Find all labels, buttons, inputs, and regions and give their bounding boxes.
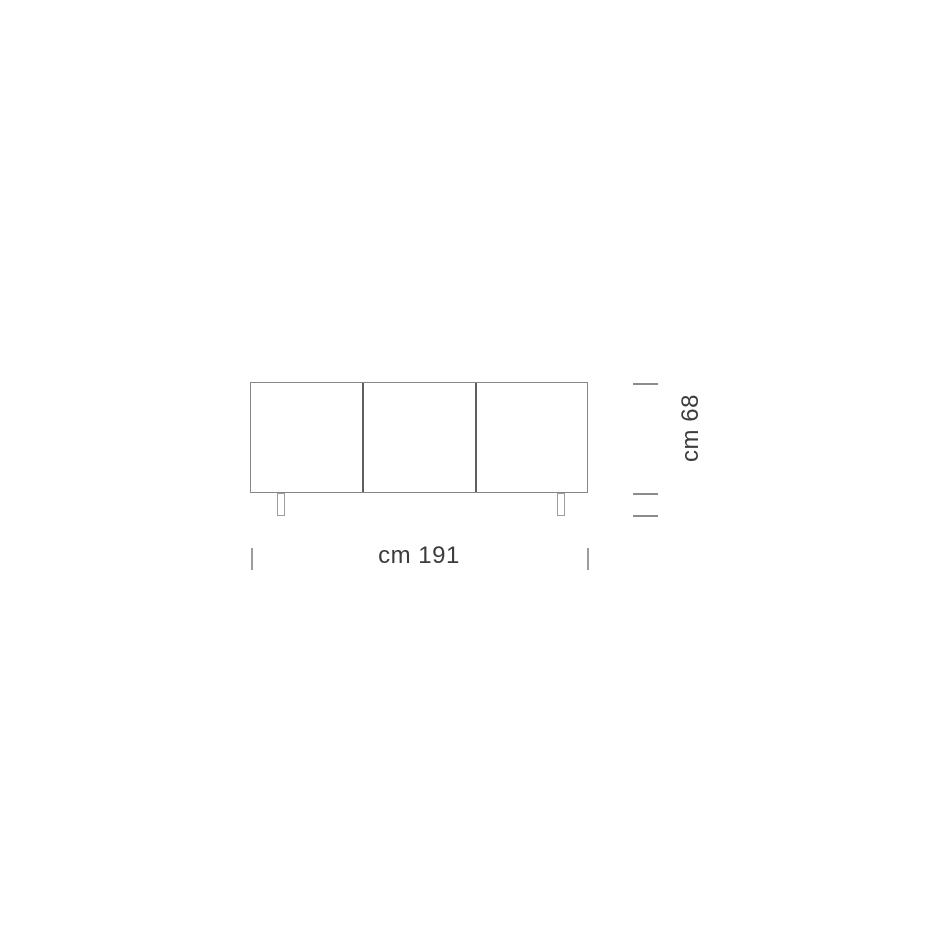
height-tick-top: [633, 383, 658, 385]
door-divider-2: [475, 383, 477, 492]
height-dimension-label: cm 68: [676, 368, 706, 488]
sideboard-outline: [250, 382, 588, 493]
height-tick-floor: [633, 515, 658, 517]
height-tick-cabinet-bottom: [633, 493, 658, 495]
leg-left: [277, 493, 285, 516]
dimension-diagram: cm 68 cm 191: [0, 0, 950, 950]
door-divider-1: [362, 383, 364, 492]
width-dimension-label: cm 191: [250, 542, 588, 570]
leg-right: [557, 493, 565, 516]
